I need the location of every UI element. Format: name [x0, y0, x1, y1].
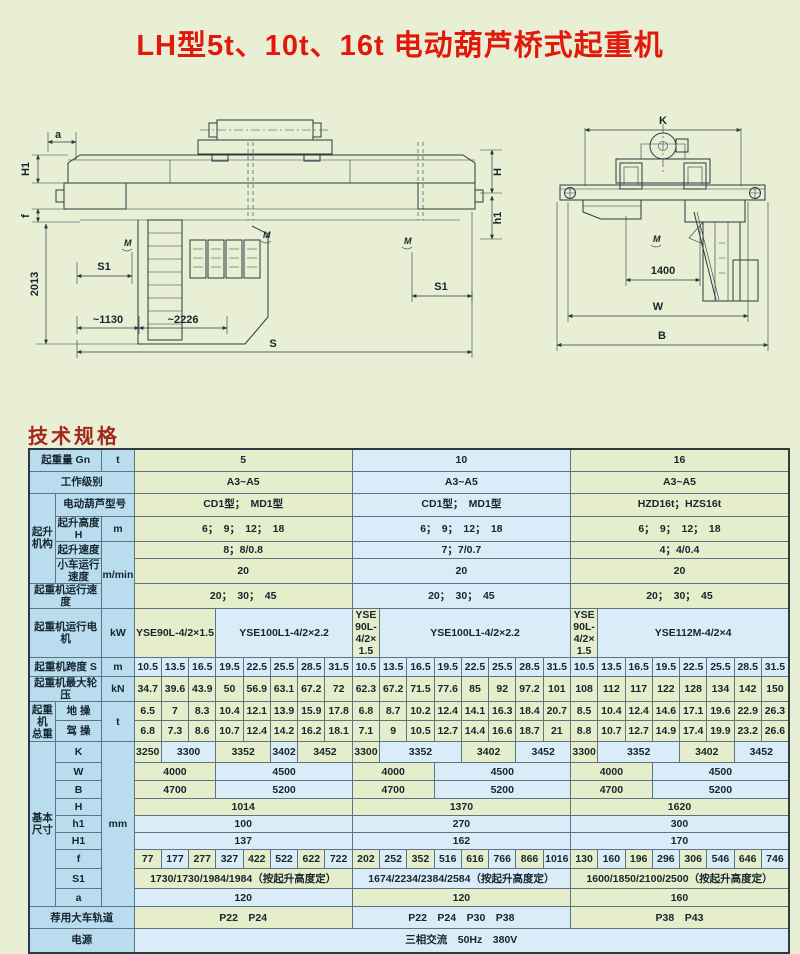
spec-value-cell: 16.3	[489, 702, 516, 721]
spec-label-cell: 起重机最大轮压	[29, 677, 102, 702]
spec-value-cell: 14.6	[652, 702, 679, 721]
spec-value-cell: 1674/2234/2384/2584（按起升高度定）	[352, 869, 570, 889]
spec-value-cell: 18.7	[516, 721, 543, 742]
spec-value-cell: 12.4	[243, 721, 270, 742]
spec-value-cell: 67.2	[380, 677, 407, 702]
spec-label-cell: f	[55, 850, 101, 869]
spec-value-cell: 12.1	[243, 702, 270, 721]
spec-label-cell: 起重机运行速度	[29, 583, 102, 608]
spec-value-cell: 12.4	[434, 702, 461, 721]
spec-value-cell: 19.9	[707, 721, 734, 742]
spec-value-cell: 8.6	[189, 721, 216, 742]
spec-value-cell: 1600/1850/2100/2500（按起升高度定）	[570, 869, 789, 889]
spec-value-cell: A3~A5	[352, 471, 570, 493]
spec-value-cell: 85	[461, 677, 488, 702]
spec-value-cell: 12.4	[625, 702, 652, 721]
table-row: 起重机运行速度20； 30； 4520； 30； 4520； 30； 45	[29, 583, 789, 608]
table-row: B470052004700520047005200	[29, 781, 789, 799]
crane-end-view: M K 1400 W B	[553, 108, 793, 358]
spec-value-cell: 15.9	[298, 702, 325, 721]
spec-value-cell: 7；7/0.7	[352, 541, 570, 558]
spec-value-cell: 12.7	[625, 721, 652, 742]
spec-label-cell: t	[102, 702, 134, 742]
spec-value-cell: 622	[298, 850, 325, 869]
spec-value-cell: 1370	[352, 799, 570, 816]
dim-k: K	[659, 115, 667, 127]
spec-value-cell: 13.5	[161, 658, 188, 677]
spec-value-cell: 8.8	[570, 721, 597, 742]
spec-value-cell: 142	[734, 677, 761, 702]
dim-f: f	[20, 214, 32, 218]
spec-value-cell: 8.5	[570, 702, 597, 721]
spec-value-cell: 10.2	[407, 702, 434, 721]
spec-value-cell: 616	[461, 850, 488, 869]
table-row: 起升高度Hm6； 9； 12； 186； 9； 12； 186； 9； 12； …	[29, 516, 789, 541]
spec-value-cell: 77.6	[434, 677, 461, 702]
dim-h: H	[492, 168, 504, 176]
table-row: h1100270300	[29, 816, 789, 833]
spec-value-cell: 18.1	[325, 721, 352, 742]
table-row: 电源三相交流 50Hz 380V	[29, 929, 789, 953]
spec-value-cell: 26.6	[761, 721, 789, 742]
dim-s1-right: S1	[434, 281, 447, 293]
spec-label-cell: 工作级别	[29, 471, 134, 493]
spec-value-cell: 3402	[461, 742, 516, 763]
page-title: LH型5t、10t、16t 电动葫芦桥式起重机	[0, 22, 800, 64]
spec-value-cell: 646	[734, 850, 761, 869]
spec-value-cell: 134	[707, 677, 734, 702]
motor-mark: M	[124, 238, 132, 248]
spec-value-cell: 3352	[216, 742, 271, 763]
spec-value-cell: 5	[134, 449, 352, 471]
spec-label-cell: H1	[55, 833, 101, 850]
spec-value-cell: 22.5	[461, 658, 488, 677]
spec-value-cell: 162	[352, 833, 570, 850]
spec-value-cell: 17.8	[325, 702, 352, 721]
spec-value-cell: 18.4	[516, 702, 543, 721]
spec-value-cell: 5200	[652, 781, 789, 799]
spec-label-cell: 起重机运行电机	[29, 608, 102, 657]
spec-value-cell: 20	[352, 558, 570, 583]
spec-value-cell: YSE90L-4/2×1.5	[352, 608, 379, 657]
spec-value-cell: 6.8	[352, 702, 379, 721]
spec-value-cell: 546	[707, 850, 734, 869]
spec-label-cell: kN	[102, 677, 134, 702]
spec-value-cell: 327	[216, 850, 243, 869]
spec-value-cell: 120	[352, 889, 570, 907]
dim-h1-left: H1	[20, 162, 32, 176]
table-row: S11730/1730/1984/1984（按起升高度定）1674/2234/2…	[29, 869, 789, 889]
spec-value-cell: 10.7	[598, 721, 625, 742]
spec-value-cell: YSE100L1-4/2×2.2	[216, 608, 352, 657]
spec-value-cell: 7	[161, 702, 188, 721]
spec-value-cell: 122	[652, 677, 679, 702]
page-root: { "page": { "title": "LH型5t、10t、16t 电动葫芦…	[0, 0, 800, 900]
spec-value-cell: 3452	[516, 742, 571, 763]
spec-label-cell: 基本 尺寸	[29, 742, 55, 907]
spec-label-cell: B	[55, 781, 101, 799]
spec-value-cell: 16.2	[298, 721, 325, 742]
spec-value-cell: 766	[489, 850, 516, 869]
spec-value-cell: 306	[680, 850, 707, 869]
spec-value-cell: 62.3	[352, 677, 379, 702]
spec-value-cell: 6； 9； 12； 18	[352, 516, 570, 541]
spec-value-cell: 101	[543, 677, 570, 702]
spec-value-cell: 6.5	[134, 702, 161, 721]
table-row: f771772773274225226227222022523525166167…	[29, 850, 789, 869]
dim-1130: ~1130	[93, 314, 123, 326]
spec-value-cell: 10.5	[407, 721, 434, 742]
spec-value-cell: 39.6	[161, 677, 188, 702]
spec-value-cell: 202	[352, 850, 379, 869]
spec-value-cell: 28.5	[734, 658, 761, 677]
spec-label-cell: 起重机跨度 S	[29, 658, 102, 677]
spec-value-cell: 6.8	[134, 721, 161, 742]
spec-value-cell: 10.4	[216, 702, 243, 721]
cab-ladder-drawing	[138, 220, 268, 344]
spec-value-cell: 22.9	[734, 702, 761, 721]
spec-value-cell: 6； 9； 12； 18	[134, 516, 352, 541]
spec-value-cell: 三相交流 50Hz 380V	[134, 929, 789, 953]
spec-label-cell: a	[55, 889, 101, 907]
spec-value-cell: 8.3	[189, 702, 216, 721]
table-row: H101413701620	[29, 799, 789, 816]
spec-value-cell: 67.2	[298, 677, 325, 702]
spec-label-cell: 电动葫芦型号	[55, 493, 134, 516]
spec-value-cell: 4500	[216, 763, 352, 781]
spec-value-cell: 5200	[434, 781, 570, 799]
spec-value-cell: 722	[325, 850, 352, 869]
spec-value-cell: 10.7	[216, 721, 243, 742]
spec-value-cell: 14.4	[461, 721, 488, 742]
spec-value-cell: 160	[570, 889, 789, 907]
dim-s: S	[269, 338, 276, 350]
spec-value-cell: P22 P24 P30 P38	[352, 907, 570, 929]
spec-value-cell: YSE100L1-4/2×2.2	[380, 608, 571, 657]
spec-value-cell: 1730/1730/1984/1984（按起升高度定）	[134, 869, 352, 889]
spec-label-cell: K	[55, 742, 101, 763]
spec-value-cell: 10.5	[570, 658, 597, 677]
spec-value-cell: 4000	[352, 763, 434, 781]
motor-mark: M	[404, 236, 412, 246]
spec-value-cell: 20	[134, 558, 352, 583]
spec-value-cell: 100	[134, 816, 352, 833]
spec-value-cell: 4700	[352, 781, 434, 799]
spec-value-cell: 112	[598, 677, 625, 702]
spec-label-cell: m	[102, 516, 134, 541]
spec-value-cell: 20； 30； 45	[570, 583, 789, 608]
spec-value-cell: 7.1	[352, 721, 379, 742]
spec-value-cell: 4000	[570, 763, 652, 781]
spec-value-cell: 4；4/0.4	[570, 541, 789, 558]
spec-value-cell: P38 P43	[570, 907, 789, 929]
dim-h1-right: h1	[492, 212, 504, 225]
table-row: 工作级别A3~A5A3~A5A3~A5	[29, 471, 789, 493]
table-row: 起重机跨度 Sm10.513.516.519.522.525.528.531.5…	[29, 658, 789, 677]
spec-value-cell: 25.5	[270, 658, 297, 677]
spec-value-cell: 746	[761, 850, 789, 869]
spec-value-cell: 3300	[352, 742, 379, 763]
spec-value-cell: 3402	[270, 742, 297, 763]
spec-value-cell: 6； 9； 12； 18	[570, 516, 789, 541]
table-row: 起升速度m/min8；8/0.87；7/0.74；4/0.4	[29, 541, 789, 558]
spec-value-cell: 10.4	[598, 702, 625, 721]
spec-label-cell: m	[102, 658, 134, 677]
spec-label-cell: 起升高度H	[55, 516, 101, 541]
table-row: H1137162170	[29, 833, 789, 850]
table-row: 驾 操6.87.38.610.712.414.216.218.17.1910.5…	[29, 721, 789, 742]
dim-2226: ~2226	[168, 314, 199, 326]
spec-value-cell: 128	[680, 677, 707, 702]
spec-label-cell: 起升速度	[55, 541, 101, 558]
spec-value-cell: 56.9	[243, 677, 270, 702]
spec-value-cell: 34.7	[134, 677, 161, 702]
spec-value-cell: 12.7	[434, 721, 461, 742]
spec-value-cell: 4700	[570, 781, 652, 799]
spec-value-cell: 20； 30； 45	[134, 583, 352, 608]
spec-value-cell: 28.5	[298, 658, 325, 677]
spec-label-cell: H	[55, 799, 101, 816]
spec-value-cell: 137	[134, 833, 352, 850]
spec-value-cell: 10	[352, 449, 570, 471]
spec-value-cell: 10.5	[352, 658, 379, 677]
spec-value-cell: 16.5	[189, 658, 216, 677]
spec-value-cell: 63.1	[270, 677, 297, 702]
spec-value-cell: 516	[434, 850, 461, 869]
table-row: 小车运行速度202020	[29, 558, 789, 583]
spec-heading: 技术规格	[28, 420, 120, 449]
spec-table-body: 起重量 Gnt51016工作级别A3~A5A3~A5A3~A5起升 机构电动葫芦…	[29, 449, 789, 953]
spec-value-cell: 14.9	[652, 721, 679, 742]
spec-value-cell: 23.2	[734, 721, 761, 742]
spec-value-cell: 3352	[598, 742, 680, 763]
table-row: 起重机最大轮压kN34.739.643.95056.963.167.27262.…	[29, 677, 789, 702]
spec-label-cell: 起升 机构	[29, 493, 55, 583]
dim-2013: 2013	[29, 272, 41, 296]
spec-value-cell: 97.2	[516, 677, 543, 702]
dim-1400: 1400	[651, 265, 675, 277]
spec-value-cell: 17.4	[680, 721, 707, 742]
spec-value-cell: 20	[570, 558, 789, 583]
spec-value-cell: 3300	[161, 742, 216, 763]
spec-value-cell: 4500	[434, 763, 570, 781]
spec-value-cell: 4700	[134, 781, 216, 799]
spec-value-cell: YSE90L-4/2×1.5	[134, 608, 216, 657]
spec-value-cell: 43.9	[189, 677, 216, 702]
spec-value-cell: 9	[380, 721, 407, 742]
spec-value-cell: P22 P24	[134, 907, 352, 929]
spec-value-cell: 300	[570, 816, 789, 833]
crane-side-view: M M M a H1 f 2013 S1 ~1130 ~2226 S H	[20, 112, 550, 370]
spec-value-cell: 25.5	[707, 658, 734, 677]
spec-value-cell: 117	[625, 677, 652, 702]
spec-value-cell: A3~A5	[570, 471, 789, 493]
table-row: 起重量 Gnt51016	[29, 449, 789, 471]
spec-value-cell: CD1型； MD1型	[352, 493, 570, 516]
spec-label-cell: S1	[55, 869, 101, 889]
table-row: 起重机运行电机kWYSE90L-4/2×1.5YSE100L1-4/2×2.2Y…	[29, 608, 789, 657]
spec-value-cell: 120	[134, 889, 352, 907]
spec-value-cell: 22.5	[680, 658, 707, 677]
spec-value-cell: 3452	[734, 742, 789, 763]
spec-value-cell: 1620	[570, 799, 789, 816]
spec-label-cell: 驾 操	[55, 721, 101, 742]
spec-value-cell: 270	[352, 816, 570, 833]
spec-value-cell: 71.5	[407, 677, 434, 702]
spec-value-cell: YSE90L-4/2×1.5	[570, 608, 597, 657]
spec-value-cell: 77	[134, 850, 161, 869]
spec-value-cell: 72	[325, 677, 352, 702]
spec-value-cell: 1016	[543, 850, 570, 869]
spec-value-cell: 8.7	[380, 702, 407, 721]
spec-value-cell: 92	[489, 677, 516, 702]
spec-value-cell: 16.5	[625, 658, 652, 677]
spec-value-cell: 5200	[216, 781, 352, 799]
spec-label-cell: 荐用大车轨道	[29, 907, 134, 929]
spec-value-cell: 3402	[680, 742, 735, 763]
spec-label-cell: t	[102, 449, 134, 471]
spec-value-cell: 8；8/0.8	[134, 541, 352, 558]
spec-value-cell: A3~A5	[134, 471, 352, 493]
spec-value-cell: 177	[161, 850, 188, 869]
spec-value-cell: 296	[652, 850, 679, 869]
spec-label-cell: m/min	[102, 541, 134, 608]
spec-value-cell: 14.2	[270, 721, 297, 742]
spec-value-cell: 31.5	[325, 658, 352, 677]
spec-value-cell: 160	[598, 850, 625, 869]
spec-label-cell: 地 操	[55, 702, 101, 721]
spec-value-cell: 31.5	[543, 658, 570, 677]
spec-label-cell: h1	[55, 816, 101, 833]
spec-value-cell: 3300	[570, 742, 597, 763]
spec-value-cell: 25.5	[489, 658, 516, 677]
table-row: 荐用大车轨道P22 P24P22 P24 P30 P38P38 P43	[29, 907, 789, 929]
spec-label-cell: 小车运行速度	[55, 558, 101, 583]
spec-value-cell: 22.5	[243, 658, 270, 677]
spec-label-cell: 起重量 Gn	[29, 449, 102, 471]
spec-value-cell: 31.5	[761, 658, 789, 677]
spec-table: 起重量 Gnt51016工作级别A3~A5A3~A5A3~A5起升 机构电动葫芦…	[28, 448, 790, 954]
spec-value-cell: 20.7	[543, 702, 570, 721]
spec-value-cell: 422	[243, 850, 270, 869]
spec-value-cell: HZD16t；HZS16t	[570, 493, 789, 516]
spec-value-cell: YSE112M-4/2×4	[598, 608, 789, 657]
spec-value-cell: 19.5	[434, 658, 461, 677]
table-row: a120120160	[29, 889, 789, 907]
motor-mark: M	[263, 230, 271, 240]
spec-value-cell: 150	[761, 677, 789, 702]
spec-label-cell: kW	[102, 608, 134, 657]
spec-value-cell: 3452	[298, 742, 353, 763]
spec-value-cell: 522	[270, 850, 297, 869]
dim-a: a	[55, 129, 62, 141]
spec-value-cell: 277	[189, 850, 216, 869]
spec-value-cell: 20； 30； 45	[352, 583, 570, 608]
spec-value-cell: 252	[380, 850, 407, 869]
table-row: 起升 机构电动葫芦型号CD1型； MD1型CD1型； MD1型HZD16t；HZ…	[29, 493, 789, 516]
spec-value-cell: 7.3	[161, 721, 188, 742]
dim-s1-left: S1	[97, 261, 110, 273]
dim-w: W	[653, 301, 664, 313]
spec-label-cell: mm	[102, 742, 134, 907]
spec-value-cell: 21	[543, 721, 570, 742]
spec-value-cell: 26.3	[761, 702, 789, 721]
spec-value-cell: 17.1	[680, 702, 707, 721]
spec-value-cell: 16.6	[489, 721, 516, 742]
spec-value-cell: 4000	[134, 763, 216, 781]
spec-value-cell: 170	[570, 833, 789, 850]
spec-value-cell: 16	[570, 449, 789, 471]
spec-value-cell: 108	[570, 677, 597, 702]
spec-value-cell: 1014	[134, 799, 352, 816]
spec-value-cell: 3352	[380, 742, 462, 763]
spec-value-cell: 4500	[652, 763, 789, 781]
spec-value-cell: 3250	[134, 742, 161, 763]
spec-value-cell: 19.5	[216, 658, 243, 677]
spec-value-cell: CD1型； MD1型	[134, 493, 352, 516]
spec-value-cell: 13.9	[270, 702, 297, 721]
table-row: 基本 尺寸Kmm32503300335234023452330033523402…	[29, 742, 789, 763]
spec-value-cell: 352	[407, 850, 434, 869]
spec-value-cell: 13.5	[598, 658, 625, 677]
spec-label-cell: W	[55, 763, 101, 781]
spec-value-cell: 50	[216, 677, 243, 702]
spec-label-cell: 起重 机 总重	[29, 702, 55, 742]
spec-value-cell: 10.5	[134, 658, 161, 677]
spec-value-cell: 196	[625, 850, 652, 869]
dim-b: B	[658, 330, 666, 342]
table-row: W400045004000450040004500	[29, 763, 789, 781]
spec-label-cell: 电源	[29, 929, 134, 953]
spec-value-cell: 866	[516, 850, 543, 869]
spec-value-cell: 16.5	[407, 658, 434, 677]
table-row: 起重 机 总重地 操t6.578.310.412.113.915.917.86.…	[29, 702, 789, 721]
spec-value-cell: 19.6	[707, 702, 734, 721]
spec-value-cell: 28.5	[516, 658, 543, 677]
spec-value-cell: 19.5	[652, 658, 679, 677]
spec-value-cell: 130	[570, 850, 597, 869]
spec-value-cell: 14.1	[461, 702, 488, 721]
spec-value-cell: 13.5	[380, 658, 407, 677]
motor-mark: M	[653, 234, 661, 244]
